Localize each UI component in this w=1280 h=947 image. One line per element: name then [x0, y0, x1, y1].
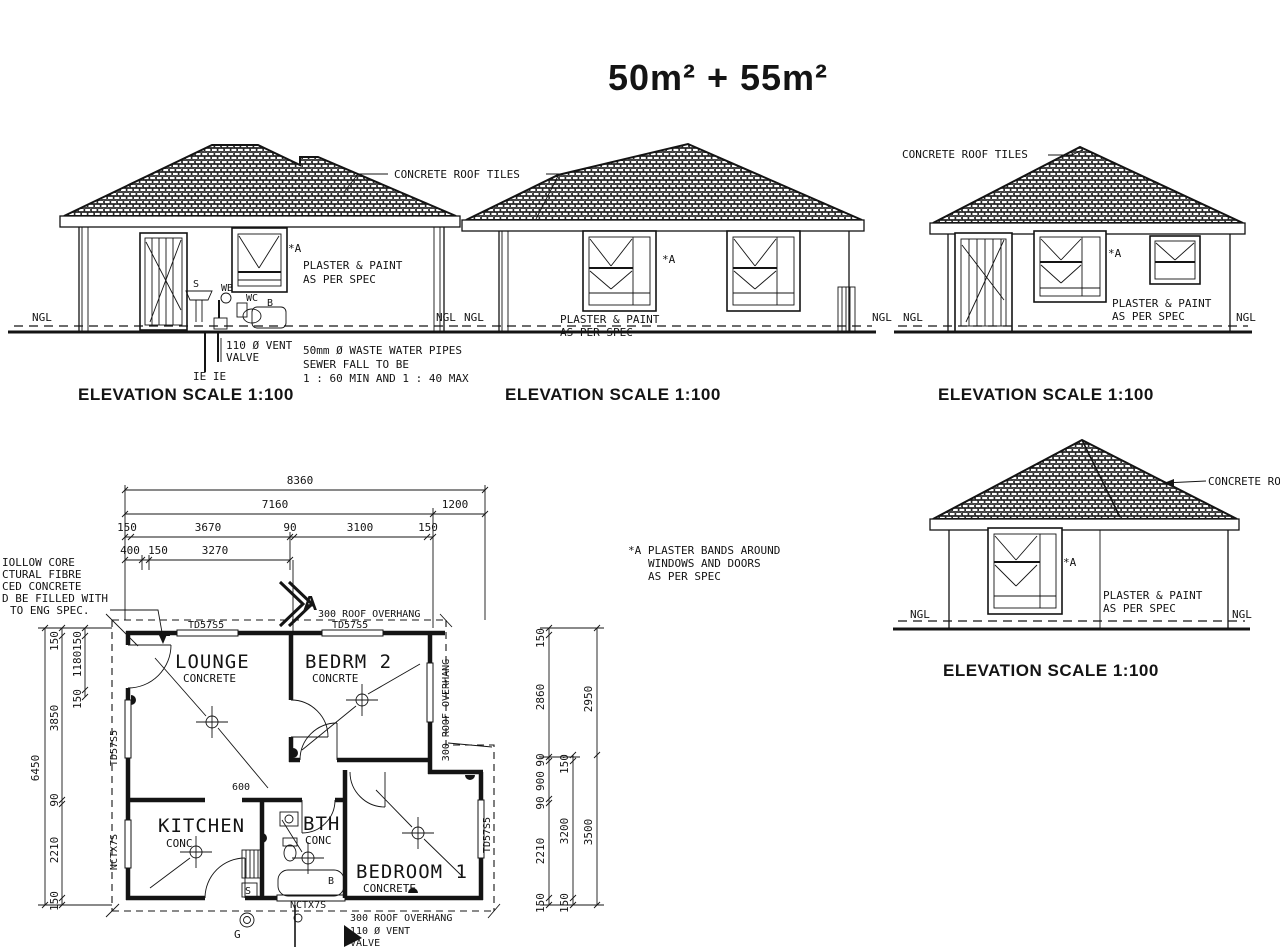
plaster-paint-label2: AS PER SPEC — [1103, 602, 1176, 615]
waste-pipes-note3: 1 : 60 MIN AND 1 : 40 MAX — [303, 372, 469, 385]
concrete-roof-tiles-label-center: CONCRETE ROOF TILES — [394, 168, 520, 181]
elevation-4: CONCRETE ROOF TILES NGL NGL *A PLASTER &… — [893, 440, 1280, 680]
sheet-title-text: 50m² + 55m² — [608, 57, 828, 98]
floor-plan: 8360 7160 1200 150 3670 90 3100 150 400 … — [29, 474, 604, 947]
bath-label: B — [267, 298, 273, 309]
dim-mid-150a: 150 — [558, 754, 571, 774]
roof-overhang-label-top: 300 ROOF OVERHANG — [318, 609, 420, 620]
floor-label-bedroom1: CONCRETE — [363, 882, 416, 895]
dim-left-150b: 150 — [48, 891, 61, 911]
dim-3270: 3270 — [202, 544, 229, 557]
wb-label: WB — [221, 283, 233, 294]
dim-right-2860: 2860 — [534, 684, 547, 711]
star-a-label: *A — [662, 253, 676, 266]
lintel-label-td57s5-top1: TD57S5 — [188, 620, 224, 631]
dim-right-90a: 90 — [534, 753, 547, 766]
dim-right-90b: 90 — [534, 796, 547, 809]
ngl-label: NGL — [1236, 311, 1256, 324]
room-label-bedroom1: BEDROOM 1 — [356, 861, 468, 883]
plaster-paint-label: PLASTER & PAINT — [1103, 589, 1203, 602]
star-a-label: *A — [288, 242, 302, 255]
floor-label-kitchen: CONC — [166, 837, 193, 850]
house-plan-drawing: 50m² + 55m² — [0, 0, 1280, 947]
dim-top-3100: 3100 — [347, 521, 374, 534]
ngl-label: NGL — [910, 608, 930, 621]
ngl-label: NGL — [1232, 608, 1252, 621]
ngl-label: NGL — [903, 311, 923, 324]
ngl-label: NGL — [436, 311, 456, 324]
note-a-line1: *A PLASTER BANDS AROUND — [628, 544, 780, 557]
dim-top-150b: 150 — [418, 521, 438, 534]
dim-right-2210: 2210 — [534, 838, 547, 865]
dim-top-3670: 3670 — [195, 521, 222, 534]
dim-right-150b: 150 — [534, 893, 547, 913]
dim-inner-1180: 1180 — [71, 651, 84, 678]
lintel-label-td57s5-right: TD57S5 — [482, 817, 493, 853]
lintel-label-nctx7s-bottom: NCTX7S — [290, 900, 326, 911]
dim-inner-150b: 150 — [71, 689, 84, 709]
waste-pipes-note2: SEWER FALL TO BE — [303, 358, 409, 371]
lintel-label-nctx7s-left: NCTX7S — [109, 834, 120, 870]
dim-600: 600 — [232, 782, 250, 793]
vent-label-plan2: VALVE — [350, 938, 380, 947]
sink-label-plan: S — [245, 886, 251, 897]
lintel-label-td57s5-top2: TD57S5 — [332, 620, 368, 631]
note-a-line3: AS PER SPEC — [648, 570, 721, 583]
dim-150c: 150 — [148, 544, 168, 557]
ngl-label: NGL — [32, 311, 52, 324]
wc-label: WC — [246, 293, 258, 304]
plaster-paint-label2: AS PER SPEC — [303, 273, 376, 286]
section-marker-a: A — [303, 593, 317, 615]
elevation-3-title: ELEVATION SCALE 1:100 — [938, 385, 1154, 404]
dim-7160: 7160 — [262, 498, 289, 511]
dim-left-150a: 150 — [48, 631, 61, 651]
plaster-paint-label2: AS PER SPEC — [560, 326, 633, 339]
architectural-drawing-page: 50m² + 55m² — [0, 0, 1280, 947]
dim-left-2210: 2210 — [48, 837, 61, 864]
dim-right-150a: 150 — [534, 628, 547, 648]
concrete-roof-tiles-label: CONCRETE ROOF TILES — [902, 148, 1028, 161]
vent-valve-label2: VALVE — [226, 351, 259, 364]
plaster-bands-note: *A PLASTER BANDS AROUND WINDOWS AND DOOR… — [628, 544, 780, 583]
dim-top-90: 90 — [283, 521, 296, 534]
elevation-1: CONCRETE ROOF TILES NGL NGL *A PLASTER &… — [8, 145, 572, 404]
elevation-1-title: ELEVATION SCALE 1:100 — [78, 385, 294, 404]
roof-overhang-label-bottom: 300 ROOF OVERHANG — [350, 913, 452, 924]
elevation-2: NGL NGL *A PLASTER & PAINT AS PER SPEC E… — [458, 144, 892, 404]
floor-label-bth: CONC — [305, 834, 332, 847]
roof-overhang-label-right: 300 ROOF OVERHANG — [441, 659, 452, 761]
elevation-2-title: ELEVATION SCALE 1:100 — [505, 385, 721, 404]
dim-right-900: 900 — [534, 771, 547, 791]
elevation-3: CONCRETE ROOF TILES NGL NGL *A PLASTER &… — [894, 147, 1256, 404]
plaster-paint-label2: AS PER SPEC — [1112, 310, 1185, 323]
room-label-bedrm2: BEDRM 2 — [305, 651, 392, 673]
dim-outer-2950: 2950 — [582, 686, 595, 713]
plaster-paint-label: PLASTER & PAINT — [560, 313, 660, 326]
dim-mid-3200: 3200 — [558, 818, 571, 845]
star-a-label: *A — [1108, 247, 1122, 260]
dim-1200: 1200 — [442, 498, 469, 511]
dim-400: 400 — [120, 544, 140, 557]
waste-pipes-note1: 50mm Ø WASTE WATER PIPES — [303, 344, 462, 357]
concrete-roof-tiles-label-clipped: CONCRETE ROOF TILES — [1208, 475, 1280, 488]
bath-label-plan: B — [328, 876, 334, 887]
dim-6450: 6450 — [29, 755, 42, 782]
side-note-line5: TO ENG SPEC. — [10, 604, 89, 617]
floor-label-lounge: CONCRETE — [183, 672, 236, 685]
vent-label-plan1: 110 Ø VENT — [350, 925, 410, 937]
elevation-4-title: ELEVATION SCALE 1:100 — [943, 661, 1159, 680]
dim-left-3850: 3850 — [48, 705, 61, 732]
ngl-label: NGL — [872, 311, 892, 324]
lintel-label-td57s5-left: TD57S5 — [109, 730, 120, 766]
dim-inner-150a: 150 — [71, 631, 84, 651]
dim-left-90: 90 — [48, 793, 61, 806]
geyser-label: G — [234, 928, 241, 941]
room-label-kitchen: KITCHEN — [158, 815, 245, 837]
room-label-bth: BTH — [303, 813, 340, 835]
note-a-line2: WINDOWS AND DOORS — [648, 557, 761, 570]
floor-label-bedrm2: CONCRTE — [312, 672, 358, 685]
dim-outer-3500: 3500 — [582, 819, 595, 846]
ngl-label: NGL — [464, 311, 484, 324]
sheet-title: 50m² + 55m² — [608, 57, 828, 98]
plaster-paint-label: PLASTER & PAINT — [1112, 297, 1212, 310]
dim-8360: 8360 — [287, 474, 314, 487]
sink-label: S — [193, 279, 199, 290]
plaster-paint-label: PLASTER & PAINT — [303, 259, 403, 272]
room-label-lounge: LOUNGE — [175, 651, 250, 673]
dim-top-150a: 150 — [117, 521, 137, 534]
ie-label: IE IE — [193, 370, 226, 383]
star-a-label: *A — [1063, 556, 1077, 569]
dim-mid-150b: 150 — [558, 893, 571, 913]
